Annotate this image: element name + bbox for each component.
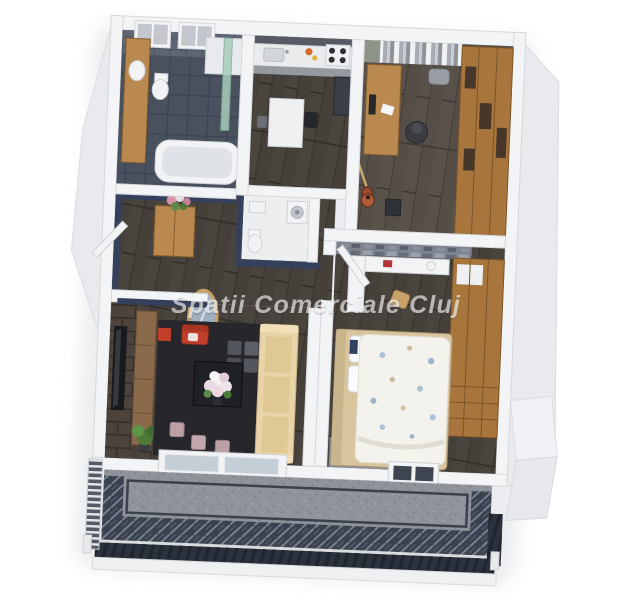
bathroom-toilet <box>152 73 169 100</box>
gray-lounge-chair <box>429 69 450 85</box>
red-pouf <box>158 328 172 342</box>
wc-toilet <box>248 229 263 253</box>
office-desk <box>364 64 402 155</box>
hallway-cabinet <box>153 205 195 257</box>
red-book <box>383 260 392 267</box>
bathroom-sink <box>129 60 146 81</box>
red-armchair <box>182 325 209 345</box>
bathroom-vanity-counter <box>121 38 150 163</box>
office-wall-green <box>364 40 381 63</box>
office-chair <box>405 121 428 144</box>
bed <box>331 329 453 470</box>
bed-duvet <box>355 334 450 466</box>
washing-machine <box>287 201 308 224</box>
wc-wall-right <box>307 198 320 262</box>
bedroom-wardrobe <box>446 258 504 438</box>
railing-post-left <box>83 535 92 553</box>
cooktop <box>325 44 350 66</box>
railing-post-right <box>490 552 499 570</box>
kitchen-stool <box>257 116 267 128</box>
floorplan-canvas: Spatii Comerciale Cluj <box>0 0 623 600</box>
bathtub <box>154 139 240 184</box>
exterior-step-upper <box>508 395 560 463</box>
office-curtains <box>380 41 463 66</box>
wc-basin <box>249 201 265 213</box>
wall-bedroom-left-upper <box>323 241 336 255</box>
office-wardrobe <box>454 46 513 236</box>
amplifier <box>385 199 401 216</box>
watermark-text: Spatii Comerciale Cluj <box>171 291 461 319</box>
monitor <box>368 94 376 114</box>
floorplan-3d-render: Spatii Comerciale Cluj <box>0 0 623 600</box>
fridge <box>333 77 351 116</box>
kitchen-chair <box>304 112 319 129</box>
kitchen-table <box>268 98 304 147</box>
wc <box>235 195 322 269</box>
cream-sofa <box>255 324 299 463</box>
desk-lamp <box>426 261 435 270</box>
